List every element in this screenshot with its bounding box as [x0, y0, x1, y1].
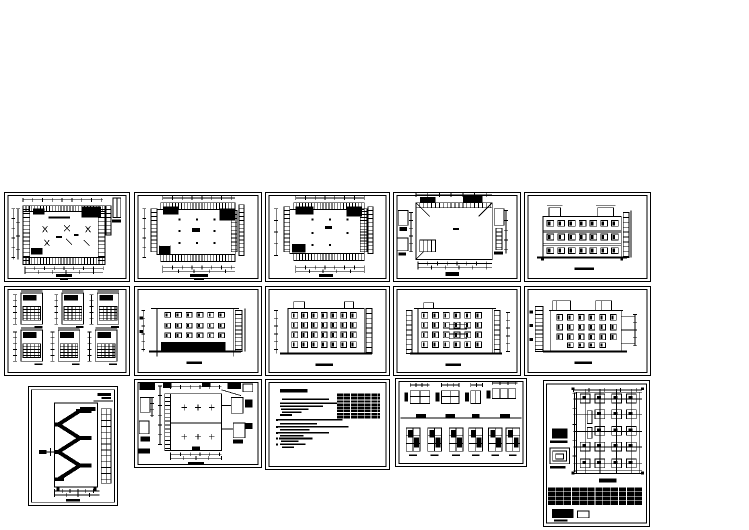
title-mark: [66, 499, 80, 502]
schedule-strip: [548, 487, 642, 505]
roof-boxes: [414, 303, 496, 309]
sheet-inner-frame: [528, 289, 647, 372]
sheet-inner-frame: [31, 390, 114, 502]
title-mark: [315, 363, 333, 366]
title-mark: [445, 272, 459, 276]
roof-plan-drawing: [394, 193, 520, 281]
panel-roof-detail-plan: [134, 379, 262, 468]
panel-stair-section: [28, 386, 118, 506]
title-mark: [190, 274, 208, 280]
ground-line: [537, 258, 627, 261]
stair-flights: [54, 409, 91, 481]
dimension-lines: [54, 487, 99, 497]
panel-stair-wall-details: [4, 286, 130, 376]
elevation-a-drawing: [525, 193, 650, 281]
elevation-c-drawing: [266, 287, 389, 375]
column-footings: [580, 394, 636, 471]
columns: [311, 218, 348, 245]
right-dims: [621, 314, 637, 345]
detail-figures: [13, 291, 119, 365]
windows: [547, 220, 618, 253]
ground-line: [149, 352, 241, 357]
panel-elevation-b: [134, 286, 262, 376]
section-details: [406, 428, 519, 456]
right-callouts: [221, 398, 252, 444]
stair-wall-details-drawing: [5, 287, 129, 375]
title-mark: [574, 361, 592, 364]
panel-design-notes: [265, 379, 390, 470]
panel-window-door-details: [395, 378, 527, 467]
window-elevations: [404, 381, 517, 418]
window-door-details-drawing: [396, 379, 526, 466]
roof-features: [416, 193, 492, 203]
windows: [165, 312, 225, 337]
right-dims: [366, 309, 372, 354]
panel-elevation-d: [393, 286, 521, 376]
roof-boxes: [549, 301, 623, 311]
sheet-inner-frame: [397, 289, 517, 372]
panel-elevation-c: [265, 286, 390, 376]
title-mark: [445, 363, 461, 366]
title-mark: [56, 274, 72, 280]
side-detail: [368, 207, 373, 254]
title-mark: [574, 267, 594, 270]
left-dims: [139, 310, 145, 351]
title-mark: [599, 479, 617, 483]
side-detail: [239, 205, 244, 256]
roof-boxes: [294, 302, 354, 309]
title-mark: [319, 274, 333, 277]
sheet-inner-frame: [138, 289, 258, 372]
left-dims: [274, 310, 278, 353]
elevation-b-drawing: [135, 287, 261, 375]
plan-body: [165, 394, 222, 451]
panel-floor-plan-1: [4, 192, 130, 282]
sheet-inner-frame: [138, 195, 258, 278]
sheet-inner-frame: [138, 382, 258, 464]
right-dims: [623, 211, 631, 258]
stair-opening: [420, 228, 459, 251]
wall-blocks: [292, 207, 362, 253]
panel-elevation-e: [524, 286, 651, 376]
cad-sheet-collage: [0, 0, 749, 530]
roof-boxes: [547, 206, 615, 217]
stair-section-drawing: [29, 387, 117, 505]
panel-roof-plan: [393, 192, 521, 282]
left-dims: [529, 307, 543, 352]
railing-detail: [101, 409, 111, 483]
elevation-e-drawing: [525, 287, 650, 375]
corner-note: [94, 393, 114, 401]
dimension-lines: [171, 452, 222, 460]
right-dims: [494, 310, 510, 353]
fixtures: [43, 225, 91, 246]
wall-blocks: [31, 207, 101, 255]
dimension-lines: [418, 261, 492, 269]
sheet-inner-frame: [269, 289, 386, 372]
storefront-band: [161, 342, 226, 351]
right-callouts: [494, 209, 508, 255]
floor-plan-3-drawing: [266, 193, 389, 281]
axis-marks: [181, 404, 214, 439]
sheet-inner-frame: [269, 195, 386, 278]
elevation-d-drawing: [394, 287, 520, 375]
right-dims: [235, 309, 245, 352]
left-callouts: [397, 211, 413, 256]
title-mark: [186, 361, 202, 364]
left-dims: [406, 310, 412, 353]
heading-mark: [280, 389, 307, 393]
left-details: [550, 428, 570, 468]
design-notes-drawing: [266, 380, 389, 469]
panel-floor-plan-2: [134, 192, 262, 282]
windows: [292, 312, 357, 347]
windows: [557, 314, 617, 347]
panel-column-layout-plan: [543, 380, 650, 527]
schedule-table: [337, 394, 380, 419]
columns: [178, 218, 215, 243]
floor-plan-1-drawing: [5, 193, 129, 281]
left-callouts: [138, 383, 161, 453]
roof-detail-plan-drawing: [135, 380, 261, 467]
panel-floor-plan-3: [265, 192, 390, 282]
column-layout-plan-drawing: [544, 381, 649, 526]
panel-elevation-a: [524, 192, 651, 282]
windows: [422, 312, 482, 347]
title-mark: [188, 462, 204, 465]
left-note: [39, 448, 55, 456]
footer-details: [552, 509, 589, 522]
floor-plan-2-drawing: [135, 193, 261, 281]
side-detail: [106, 198, 121, 235]
sheet-inner-frame: [8, 289, 126, 372]
